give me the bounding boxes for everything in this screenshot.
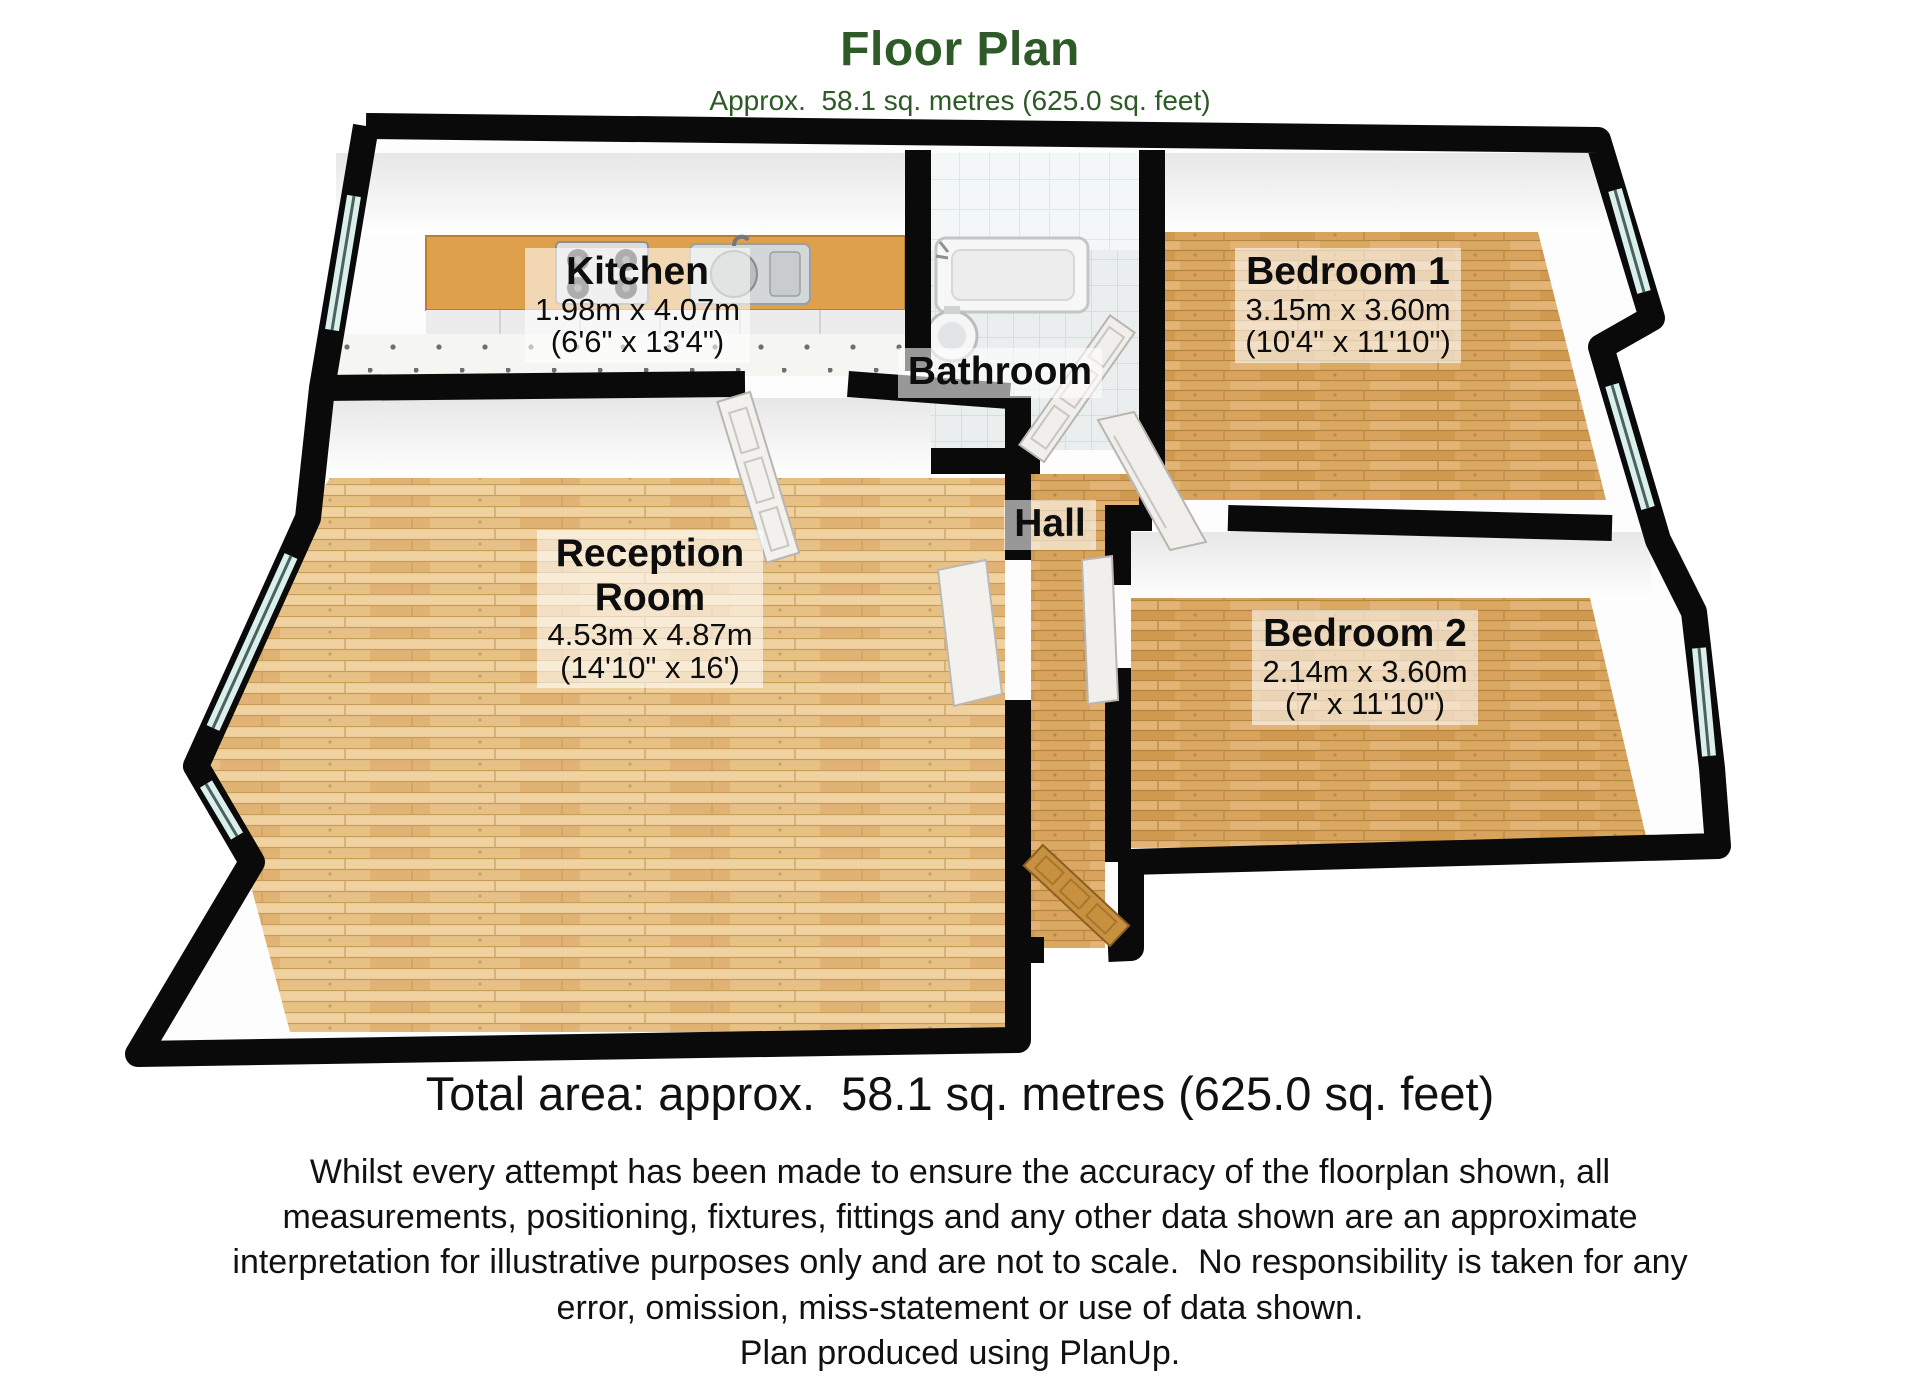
kitchen-metric: 1.98m x 4.07m <box>535 294 740 327</box>
bedroom1-imperial: (10'4" x 11'10") <box>1245 326 1451 359</box>
label-bedroom1: Bedroom 1 3.15m x 3.60m (10'4" x 11'10") <box>1198 248 1498 363</box>
label-kitchen: Kitchen 1.98m x 4.07m (6'6" x 13'4") <box>495 248 780 363</box>
reception-name-line1: Reception <box>547 532 752 576</box>
plan-credit: Plan produced using PlanUp. <box>0 1331 1920 1376</box>
label-bathroom: Bathroom <box>880 348 1120 398</box>
disclaimer-line-3: interpretation for illustrative purposes… <box>0 1240 1920 1285</box>
disclaimer-line-4: error, omission, miss-statement or use o… <box>0 1286 1920 1331</box>
reception-metric: 4.53m x 4.87m <box>547 619 752 652</box>
bedroom2-metric: 2.14m x 3.60m <box>1262 656 1467 689</box>
bedroom1-metric: 3.15m x 3.60m <box>1245 294 1451 327</box>
bedroom2-name: Bedroom 2 <box>1262 612 1467 656</box>
label-bedroom2: Bedroom 2 2.14m x 3.60m (7' x 11'10") <box>1210 610 1520 725</box>
total-area-text: Total area: approx. 58.1 sq. metres (625… <box>0 1066 1920 1121</box>
hall-name: Hall <box>1014 502 1086 546</box>
disclaimer: Whilst every attempt has been made to en… <box>0 1150 1920 1376</box>
bathroom-name: Bathroom <box>908 350 1092 394</box>
label-hall: Hall <box>980 500 1120 550</box>
disclaimer-line-1: Whilst every attempt has been made to en… <box>0 1150 1920 1195</box>
kitchen-name: Kitchen <box>535 250 740 294</box>
reception-imperial: (14'10" x 16') <box>547 652 752 685</box>
bedroom2-imperial: (7' x 11'10") <box>1262 688 1467 721</box>
floor-plan-page: Floor Plan Approx. 58.1 sq. metres (625.… <box>0 0 1920 1396</box>
kitchen-imperial: (6'6" x 13'4") <box>535 326 740 359</box>
disclaimer-line-2: measurements, positioning, fixtures, fit… <box>0 1195 1920 1240</box>
label-reception: Reception Room 4.53m x 4.87m (14'10" x 1… <box>495 530 805 688</box>
bedroom2-door <box>1082 556 1118 704</box>
bedroom1-name: Bedroom 1 <box>1245 250 1451 294</box>
reception-name-line2: Room <box>547 576 752 620</box>
